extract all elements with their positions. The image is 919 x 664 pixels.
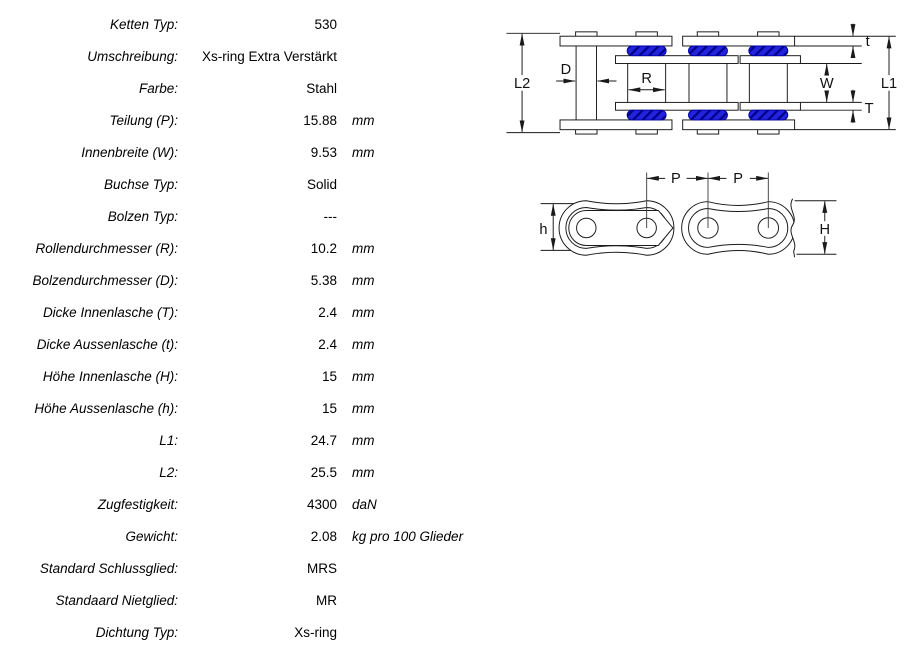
spec-row: Dicke Aussenlasche (t):2.4mm <box>0 329 500 361</box>
spec-row: Gewicht:2.08kg pro 100 Glieder <box>0 521 500 553</box>
spec-label: Dichtung Typ: <box>0 617 178 649</box>
spec-value: 24.7 <box>178 425 337 457</box>
spec-row: Dichtung Typ:Xs-ring <box>0 617 500 649</box>
spec-row: Bolzendurchmesser (D):5.38mm <box>0 265 500 297</box>
pin-lines <box>576 46 596 120</box>
spec-value: 2.4 <box>178 297 337 329</box>
dim-label-t-outer: t <box>866 34 870 50</box>
spec-value: Solid <box>178 169 337 201</box>
spec-unit: mm <box>352 233 375 265</box>
spec-row: Bolzen Typ:--- <box>0 201 500 233</box>
dim-label-h-inner: H <box>820 222 831 238</box>
spec-unit: mm <box>352 265 375 297</box>
spec-row: Buchse Typ:Solid <box>0 169 500 201</box>
spec-label: Ketten Typ: <box>0 9 178 41</box>
spec-value: 530 <box>178 9 337 41</box>
spec-row: Farbe:Stahl <box>0 73 500 105</box>
spec-value: 2.4 <box>178 329 337 361</box>
side-view-diagram: P P h H <box>539 171 836 258</box>
spec-value: 2.08 <box>178 521 337 553</box>
pin-hole <box>577 218 596 237</box>
chain-spec-table: Ketten Typ:530 Umschreibung:Xs-ring Extr… <box>0 9 500 649</box>
spec-unit: mm <box>352 425 375 457</box>
spec-label: Umschreibung: <box>0 41 178 73</box>
inner-link <box>682 202 795 255</box>
spec-label: Dicke Aussenlasche (t): <box>0 329 178 361</box>
dim-label-h-outer: h <box>539 222 547 238</box>
spec-value: 15 <box>178 393 337 425</box>
top-view-diagram: L2 L1 t W T D R <box>506 24 901 134</box>
spec-label: L2: <box>0 457 178 489</box>
spec-value: 5.38 <box>178 265 337 297</box>
spec-unit: mm <box>352 393 375 425</box>
spec-label: Gewicht: <box>0 521 178 553</box>
spec-label: Zugfestigkeit: <box>0 489 178 521</box>
spec-label: Farbe: <box>0 73 178 105</box>
dim-label-t-inner: T <box>865 101 874 117</box>
spec-unit: mm <box>352 137 375 169</box>
pin-end-tabs <box>576 32 779 134</box>
chain-dimension-diagram: L2 L1 t W T D R <box>495 8 919 300</box>
dim-label-p-right: P <box>733 171 743 187</box>
spec-row: Höhe Innenlasche (H):15mm <box>0 361 500 393</box>
spec-label: Bolzen Typ: <box>0 201 178 233</box>
spec-unit: mm <box>352 361 375 393</box>
spec-label: Höhe Aussenlasche (h): <box>0 393 178 425</box>
dim-label-r: R <box>641 71 652 87</box>
spec-label: Standaard Nietglied: <box>0 585 178 617</box>
spec-label: Dicke Innenlasche (T): <box>0 297 178 329</box>
spec-label: Höhe Innenlasche (H): <box>0 361 178 393</box>
dim-label-l2: L2 <box>514 76 530 92</box>
spec-value: --- <box>178 201 337 233</box>
spec-value: Stahl <box>178 73 337 105</box>
spec-row: L2:25.5mm <box>0 457 500 489</box>
spec-label: Buchse Typ: <box>0 169 178 201</box>
spec-row: Umschreibung:Xs-ring Extra Verstärkt <box>0 41 500 73</box>
dim-label-d: D <box>561 62 572 78</box>
spec-unit: daN <box>352 489 377 521</box>
spec-unit: kg pro 100 Glieder <box>352 521 463 553</box>
spec-unit: mm <box>352 329 375 361</box>
spec-value: 15.88 <box>178 105 337 137</box>
master-link <box>559 201 674 256</box>
spec-row: L1:24.7mm <box>0 425 500 457</box>
spec-value: Xs-ring <box>178 617 337 649</box>
spec-row: Standaard Nietglied:MR <box>0 585 500 617</box>
spec-label: Innenbreite (W): <box>0 137 178 169</box>
spec-value: 15 <box>178 361 337 393</box>
spec-row: Rollendurchmesser (R):10.2mm <box>0 233 500 265</box>
spec-value: 9.53 <box>178 137 337 169</box>
spec-value: MRS <box>178 553 337 585</box>
dim-label-l1: L1 <box>881 76 897 92</box>
spec-unit: mm <box>352 297 375 329</box>
dim-label-w: W <box>820 76 834 92</box>
spec-label: Bolzendurchmesser (D): <box>0 265 178 297</box>
spec-label: L1: <box>0 425 178 457</box>
spec-row: Zugfestigkeit:4300daN <box>0 489 500 521</box>
spec-row: Ketten Typ:530 <box>0 9 500 41</box>
spec-unit: mm <box>352 457 375 489</box>
spec-value: MR <box>178 585 337 617</box>
spec-row: Dicke Innenlasche (T):2.4mm <box>0 297 500 329</box>
spec-label: Teilung (P): <box>0 105 178 137</box>
spec-row: Innenbreite (W):9.53mm <box>0 137 500 169</box>
spec-row: Standard Schlussglied:MRS <box>0 553 500 585</box>
spec-label: Rollendurchmesser (R): <box>0 233 178 265</box>
spec-label: Standard Schlussglied: <box>0 553 178 585</box>
spec-row: Teilung (P):15.88mm <box>0 105 500 137</box>
spec-value: 4300 <box>178 489 337 521</box>
spec-unit: mm <box>352 105 375 137</box>
spec-row: Höhe Aussenlasche (h):15mm <box>0 393 500 425</box>
spec-value: 25.5 <box>178 457 337 489</box>
spec-value: Xs-ring Extra Verstärkt <box>178 41 337 73</box>
spec-value: 10.2 <box>178 233 337 265</box>
dim-label-p-left: P <box>671 171 681 187</box>
